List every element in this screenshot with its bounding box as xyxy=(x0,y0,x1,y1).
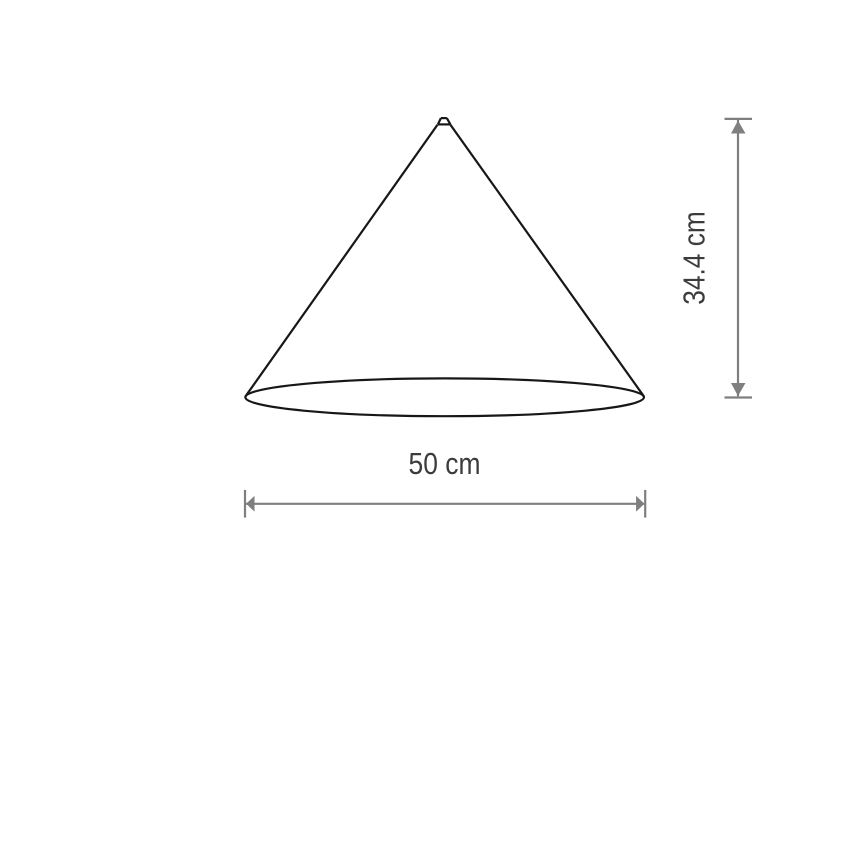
svg-text:50 cm: 50 cm xyxy=(409,447,481,481)
svg-text:34.4 cm: 34.4 cm xyxy=(678,211,712,305)
